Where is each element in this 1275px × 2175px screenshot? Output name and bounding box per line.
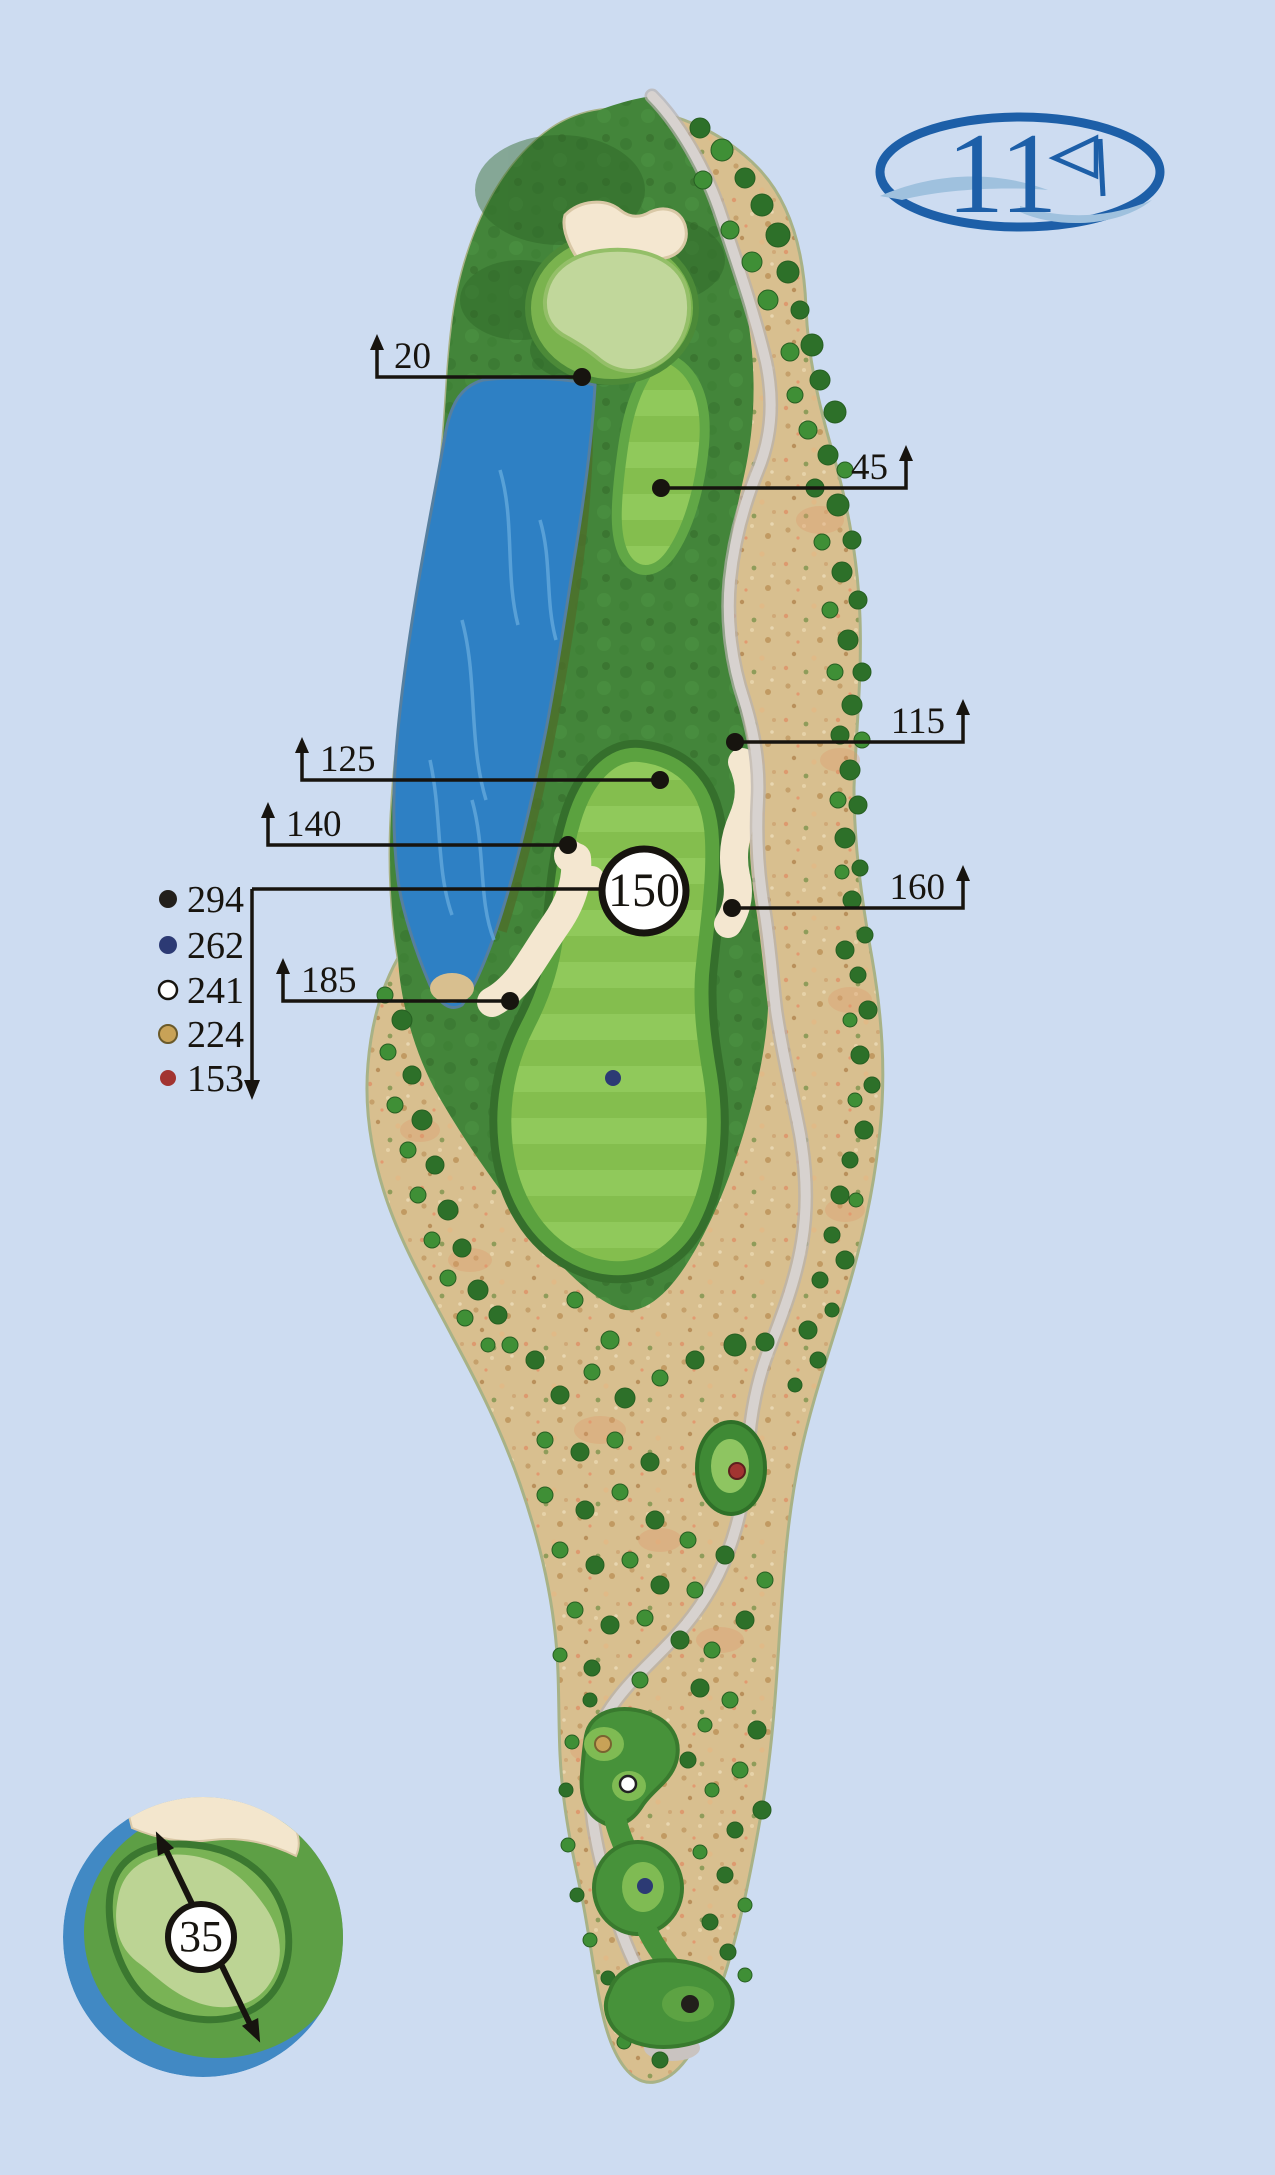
black-tee-dot <box>681 1995 699 2013</box>
center-marker-label: 150 <box>608 864 680 917</box>
legend-distance-white: 241 <box>187 970 244 1012</box>
fairway-blue-dot <box>605 1070 621 1086</box>
yardage-label-115: 115 <box>891 701 945 742</box>
gold-tee-swatch <box>159 1025 177 1043</box>
yardage-label-160: 160 <box>890 867 946 908</box>
legend-distance-gold: 224 <box>187 1014 244 1056</box>
hole-number: 11 <box>947 110 1058 237</box>
red-tee-dot <box>729 1463 745 1479</box>
red-tee-swatch <box>160 1070 176 1086</box>
legend-distance-black: 294 <box>187 879 244 921</box>
green-depth-label: 35 <box>179 1912 223 1961</box>
lakeside-sand <box>430 973 474 1003</box>
white-tee-swatch <box>159 981 177 999</box>
yardage-label-45: 45 <box>851 447 888 488</box>
legend-distance-blue: 262 <box>187 925 244 967</box>
yardage-label-185: 185 <box>301 960 357 1001</box>
legend-distance-red: 153 <box>187 1058 244 1100</box>
hole-11-yardage-map: 20 45 115 125 140 <box>0 0 1275 2175</box>
gold-tee-dot <box>595 1736 611 1752</box>
yardage-label-125: 125 <box>320 739 376 780</box>
blue-tee-dot <box>637 1878 653 1894</box>
yardage-label-20: 20 <box>394 336 431 377</box>
yardage-label-140: 140 <box>286 804 342 845</box>
white-tee-dot <box>620 1776 636 1792</box>
black-tee-swatch <box>159 890 177 908</box>
blue-tee-swatch <box>159 936 177 954</box>
